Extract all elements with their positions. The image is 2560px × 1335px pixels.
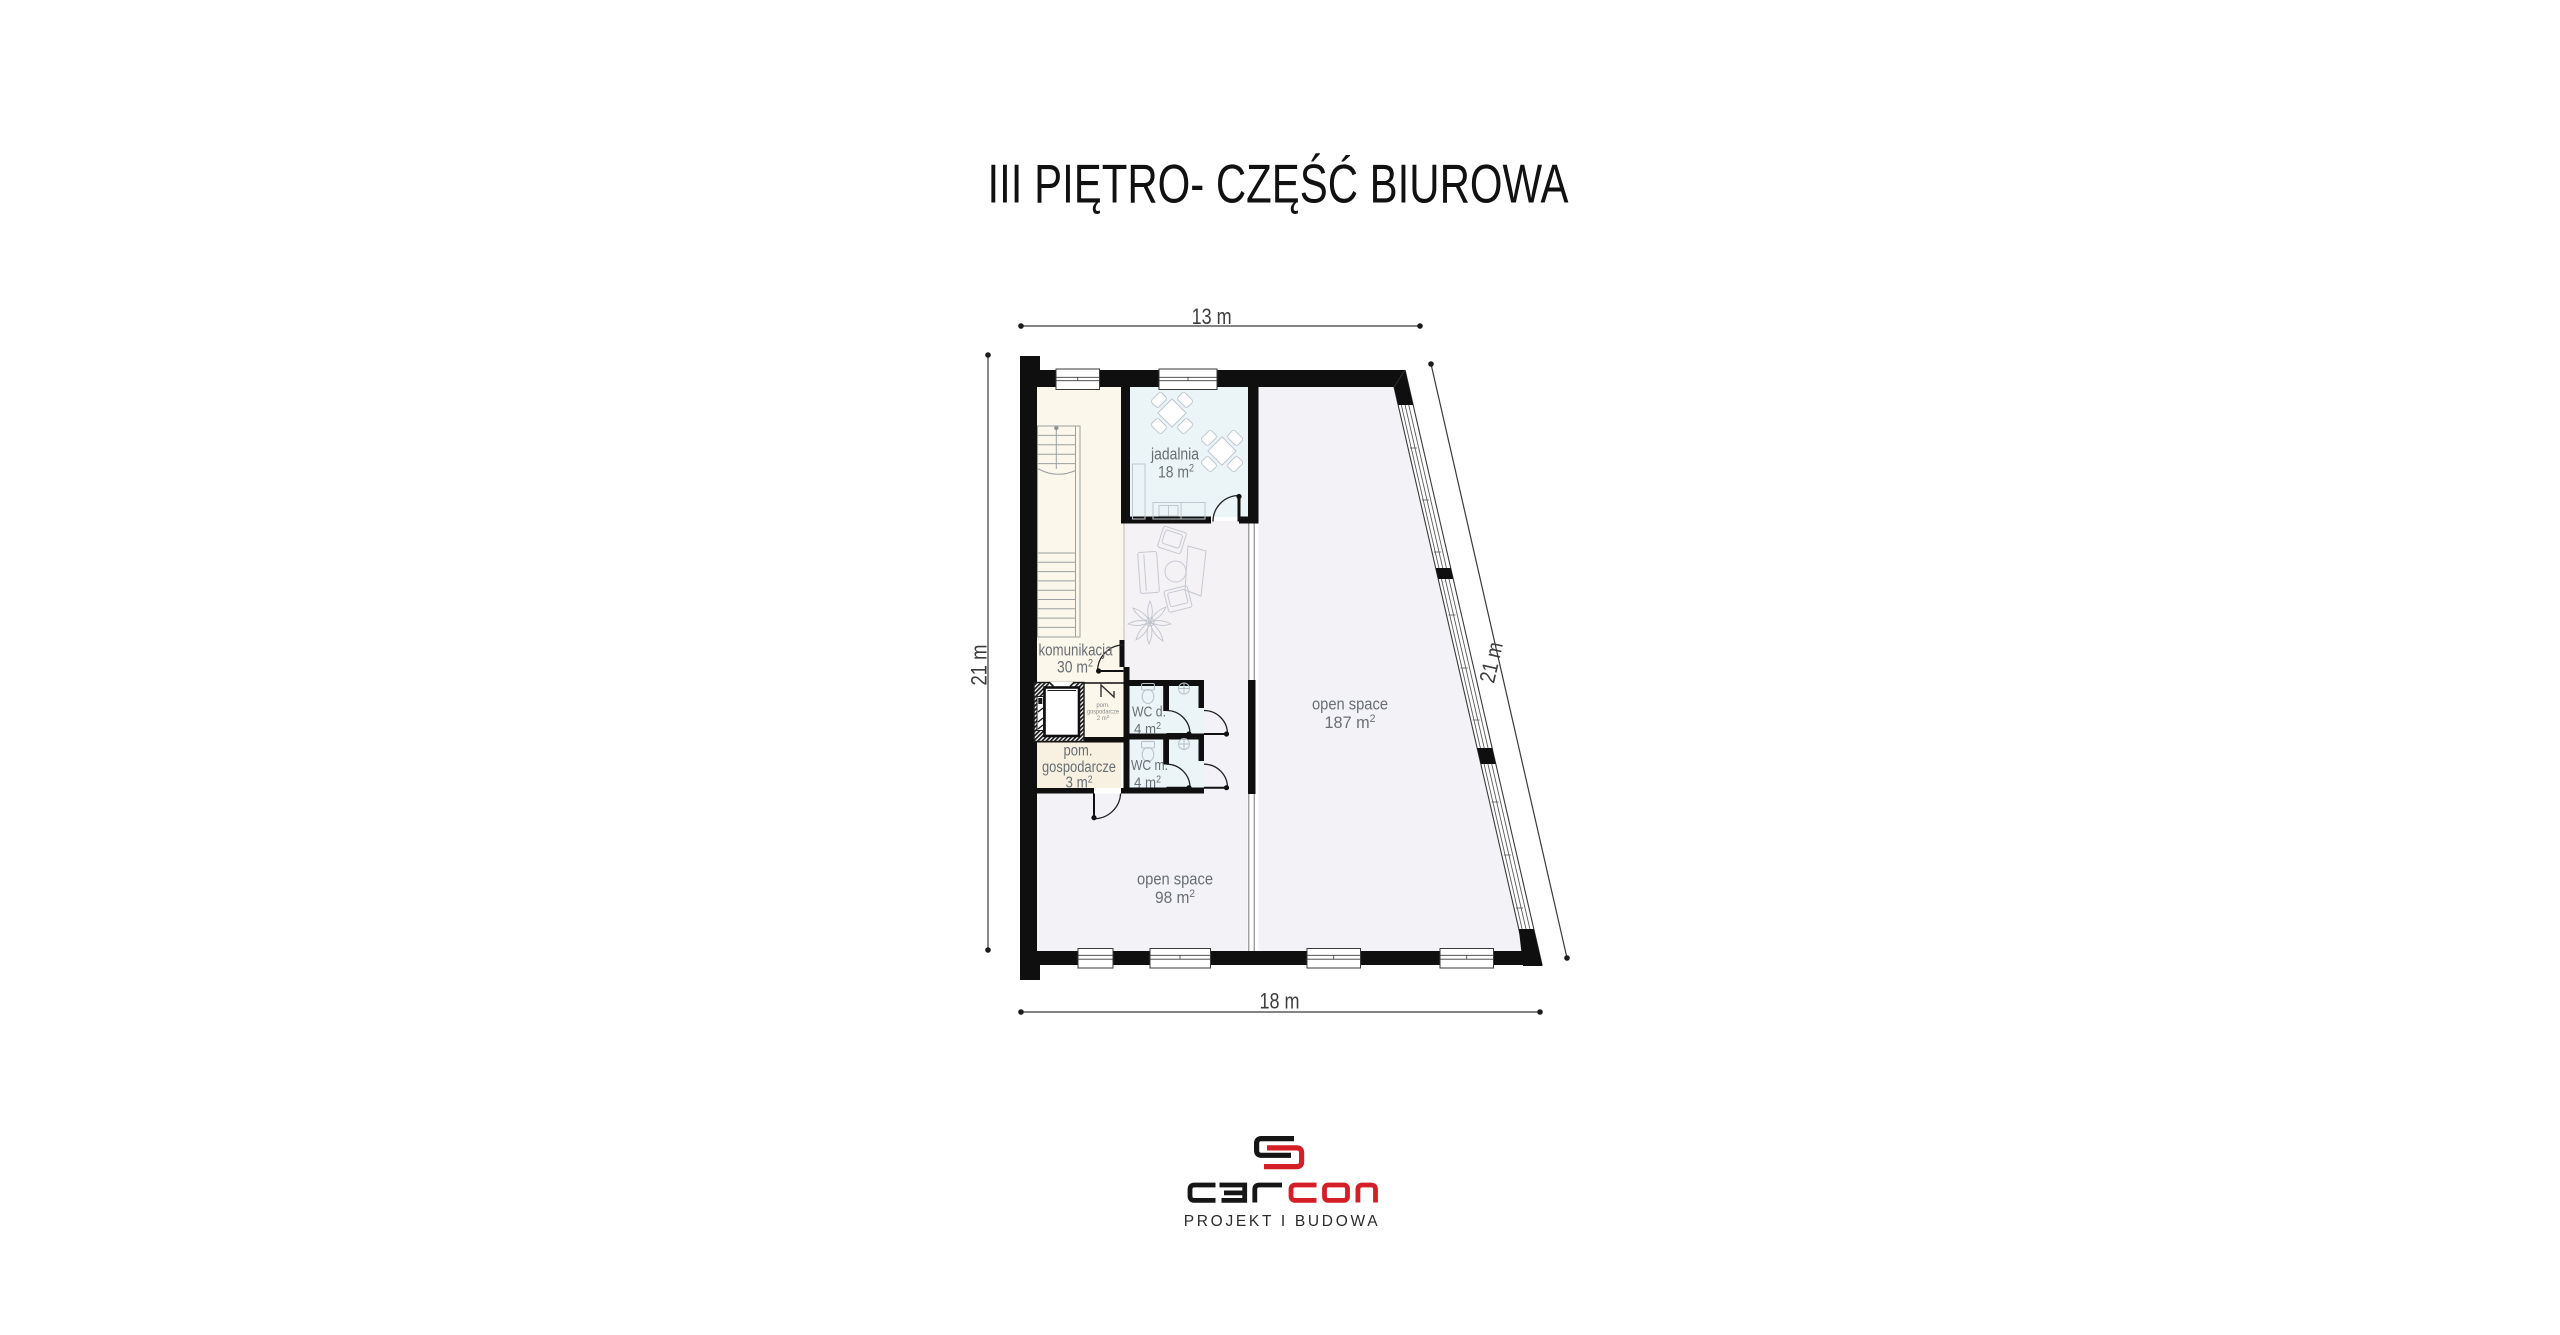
svg-text:gospodarcze: gospodarcze bbox=[1087, 710, 1120, 716]
svg-text:98 m2: 98 m2 bbox=[1155, 888, 1195, 907]
svg-text:WC m.: WC m. bbox=[1131, 757, 1168, 774]
svg-text:18 m2: 18 m2 bbox=[1158, 463, 1194, 482]
svg-text:pom.: pom. bbox=[1096, 703, 1110, 709]
svg-text:PROJEKT I BUDOWA: PROJEKT I BUDOWA bbox=[1184, 1213, 1381, 1230]
svg-text:21 m: 21 m bbox=[967, 645, 992, 686]
svg-text:pom.: pom. bbox=[1064, 743, 1093, 760]
svg-text:18 m: 18 m bbox=[1260, 989, 1300, 1014]
svg-text:jadalnia: jadalnia bbox=[1150, 445, 1199, 464]
svg-text:open space: open space bbox=[1312, 695, 1388, 714]
svg-text:13 m: 13 m bbox=[1192, 304, 1232, 329]
svg-text:WC d.: WC d. bbox=[1132, 704, 1166, 721]
svg-text:gospodarcze: gospodarcze bbox=[1042, 759, 1116, 776]
svg-text:open space: open space bbox=[1137, 870, 1213, 889]
svg-text:30 m2: 30 m2 bbox=[1057, 658, 1093, 677]
svg-text:187 m2: 187 m2 bbox=[1325, 713, 1376, 732]
svg-text:III PIĘTRO- CZĘŚĆ BIUROWA: III PIĘTRO- CZĘŚĆ BIUROWA bbox=[988, 153, 1569, 215]
